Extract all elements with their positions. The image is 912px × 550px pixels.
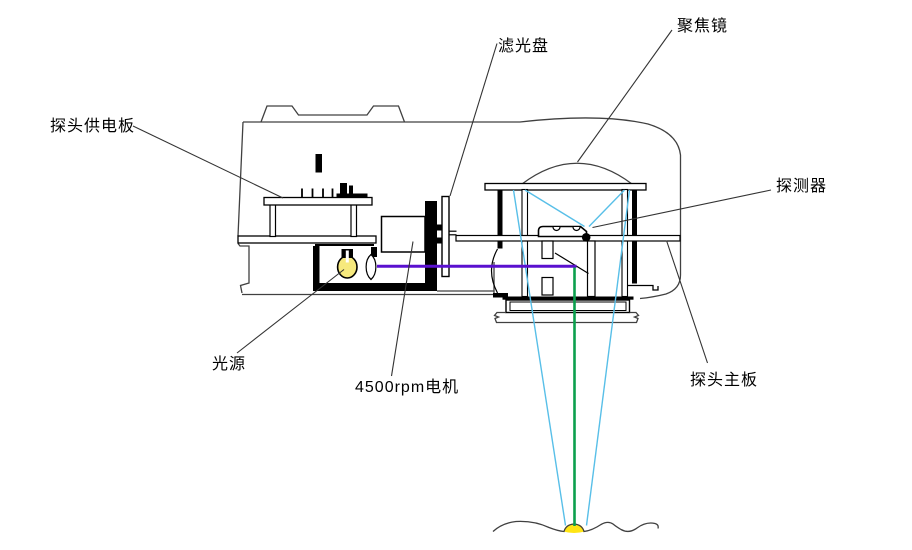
detector-sensor-dot <box>582 233 591 242</box>
connector-block <box>316 154 323 173</box>
motor-bracket <box>425 201 437 290</box>
power-board-assembly <box>264 154 372 237</box>
shell-top-right-edge <box>243 118 681 299</box>
label-main-board: 探头主板 <box>690 372 758 390</box>
label-filter-disk: 滤光盘 <box>498 38 549 56</box>
detector-cell-right <box>573 227 580 231</box>
probe-cutaway-diagram: 探头供电板 滤光盘 聚焦镜 探测器 光源 4500rpm电机 探头主板 <box>0 0 912 550</box>
leader-filter-disk <box>450 44 497 197</box>
shell-top-bump <box>261 106 405 122</box>
shell-left-edge <box>238 122 249 293</box>
fold-mirror <box>555 253 589 274</box>
leader-light-source <box>237 270 344 354</box>
leader-main-board <box>667 241 708 364</box>
power-board-pcb <box>264 198 372 206</box>
housing-post-inner-left <box>522 190 528 297</box>
motor-body <box>382 217 426 253</box>
detector-support-column <box>588 241 596 297</box>
ray-to-detector-right <box>589 190 625 227</box>
leader-lines <box>133 30 771 376</box>
power-board-leg-right <box>351 205 357 237</box>
condenser-lens <box>366 255 376 280</box>
filter-disk <box>442 197 449 277</box>
label-focus-lens: 聚焦镜 <box>677 18 728 36</box>
detector-support-block-upper <box>542 241 553 259</box>
label-motor: 4500rpm电机 <box>355 379 459 397</box>
label-detector: 探测器 <box>776 178 827 196</box>
leader-power-board <box>133 126 283 198</box>
diagram-canvas <box>0 0 912 550</box>
detector-cell-left <box>553 227 560 231</box>
leader-motor <box>392 242 414 377</box>
detector-assembly <box>539 227 596 297</box>
label-light-source: 光源 <box>212 356 246 374</box>
focus-lens-dome <box>522 163 632 184</box>
detector-support-block-lower <box>542 278 553 296</box>
shell-right-inner-step <box>624 286 658 291</box>
power-board-pins <box>302 189 333 198</box>
filter-disk-hub <box>450 231 457 235</box>
ray-to-detector-left <box>525 190 585 227</box>
probe-base <box>495 297 639 323</box>
power-board-leg-left <box>270 205 276 237</box>
motor-shaft <box>437 225 442 244</box>
base-skirt <box>495 313 639 323</box>
leader-focus-lens <box>578 30 673 162</box>
light-bulb <box>338 249 357 278</box>
label-power-board: 探头供电板 <box>50 118 135 136</box>
